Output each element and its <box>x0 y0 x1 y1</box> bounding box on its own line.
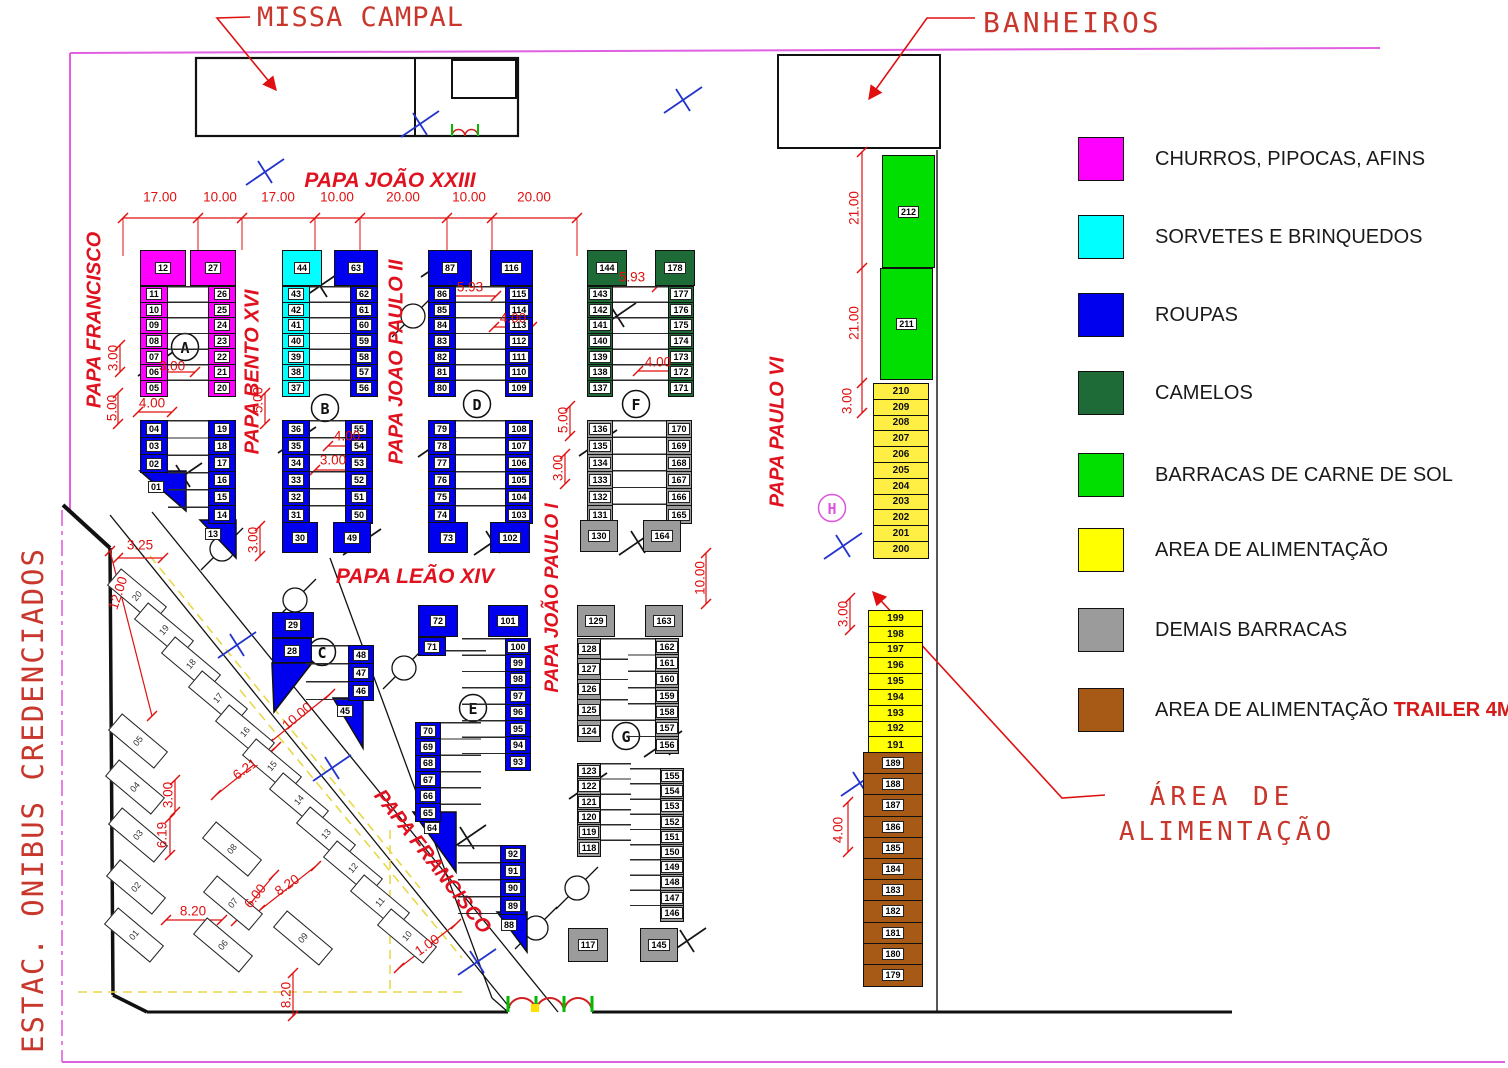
stall-number: 163 <box>653 615 674 627</box>
parking-stall-number: 02 <box>129 880 143 894</box>
stall-endcap: 130 <box>580 520 618 552</box>
stall-number: 53 <box>351 457 367 469</box>
stall-cell: 120 <box>578 810 600 825</box>
street-papa-joao-paulo-ii: PAPA JOAO PAULO II <box>386 260 409 465</box>
stall-number: 146 <box>661 907 682 919</box>
stall-cell: 139 <box>588 349 612 365</box>
stall-cell: 03 <box>141 438 167 455</box>
stall-number: 104 <box>508 491 529 503</box>
stall-number: 73 <box>440 532 456 544</box>
stall-number: 115 <box>509 288 530 300</box>
stall-number: 90 <box>505 882 521 894</box>
reference-circle-D: D <box>472 396 481 414</box>
stall-number: 124 <box>578 725 599 737</box>
stall-number: 10 <box>146 304 162 316</box>
parking-stall-number: 17 <box>211 691 225 705</box>
stall-cell: 85 <box>429 303 455 319</box>
stall-cell: 127 <box>578 659 600 679</box>
stall-number: 212 <box>898 206 919 218</box>
parking-stall-number: 06 <box>216 938 230 952</box>
parking-stall-number: 20 <box>130 589 144 603</box>
legend-label: CHURROS, PIPOCAS, AFINS <box>1155 148 1425 171</box>
stall-number: 38 <box>288 366 304 378</box>
stall-column: 706968676665 <box>415 722 441 822</box>
stall-endcap: 73 <box>428 522 468 553</box>
stall-number: 92 <box>505 848 521 860</box>
street-papa-leao-xiv: PAPA LEÃO XIV <box>336 565 494 589</box>
stall-number: 168 <box>668 457 689 469</box>
stall-number: 91 <box>505 865 521 877</box>
stall-number: 34 <box>288 457 304 469</box>
stall-number: 128 <box>578 643 599 655</box>
stall-column: 363534333231 <box>282 420 310 524</box>
stall-cell: 18 <box>209 438 235 455</box>
dimension-label: 3.00 <box>320 453 346 468</box>
stall-number: 23 <box>214 335 230 347</box>
stall-number: 71 <box>424 641 440 653</box>
stall-number: 156 <box>656 739 677 751</box>
stall-number: 202 <box>893 512 910 523</box>
stall-cell: 171 <box>669 381 693 397</box>
stall-number: 161 <box>656 657 677 669</box>
stall-column: 199198197196195194193192191 <box>868 610 923 754</box>
stall-number: 40 <box>288 335 304 347</box>
dimension-label: 3.00 <box>106 345 121 371</box>
stall-number: 201 <box>893 528 910 539</box>
stall-column: 191817161514 <box>208 420 236 524</box>
stall-column: 177176175174173172171 <box>668 286 694 397</box>
stall-wedge: 13 <box>205 524 221 542</box>
stall-column: 11100908070605 <box>140 286 168 397</box>
stall-cell: 168 <box>667 455 691 472</box>
stall-number: 19 <box>214 423 230 435</box>
stall-cell: 31 <box>283 506 309 523</box>
stall-number: 93 <box>510 756 526 768</box>
stall-number: 155 <box>661 770 682 782</box>
stall-endcap: 212 <box>882 155 935 268</box>
stall-number: 165 <box>668 509 689 521</box>
stall-divider-lines <box>456 420 505 522</box>
stall-number: 25 <box>214 304 230 316</box>
stall-endcap: 27 <box>190 250 236 286</box>
stall-endcap: 178 <box>655 250 695 286</box>
stall-number: 12 <box>155 262 171 274</box>
stall-number: 208 <box>893 417 910 428</box>
stall-cell: 15 <box>209 489 235 506</box>
stall-number: 79 <box>434 423 450 435</box>
stall-cell: 47 <box>349 664 373 682</box>
stall-cell: 11 <box>141 287 167 303</box>
dimension-label: 10.00 <box>320 190 354 205</box>
area-alimentacao-label-line2: ALIMENTAÇÃO <box>1119 817 1335 847</box>
dimension-label: 5.93 <box>457 280 483 295</box>
street-papa-paulo-vi: PAPA PAULO VI <box>767 357 790 507</box>
stall-endcap: 164 <box>643 520 681 552</box>
stall-number: 211 <box>896 318 917 330</box>
stall-cell: 157 <box>656 720 678 736</box>
legend-swatch <box>1078 371 1124 415</box>
dimension-label: 5.00 <box>556 407 571 433</box>
dimension-label: 20.00 <box>517 190 551 205</box>
stall-number: 184 <box>882 863 903 875</box>
stall-number: 204 <box>893 481 910 492</box>
stall-number: 15 <box>214 491 230 503</box>
stall-endcap: 72 <box>418 605 458 637</box>
stall-cell: 69 <box>416 739 440 755</box>
parking-stall-number: 07 <box>226 896 240 910</box>
stall-cell: 158 <box>656 704 678 720</box>
stall-number: 183 <box>882 884 903 896</box>
stall-number: 177 <box>670 288 691 300</box>
stall-cell: 177 <box>669 287 693 303</box>
stall-number: 45 <box>337 705 353 717</box>
stall-cell: 179 <box>864 965 922 986</box>
stall-cell: 193 <box>869 706 922 722</box>
stall-cell: 40 <box>283 334 309 350</box>
stall-cell: 98 <box>506 672 530 688</box>
stall-endcap: 116 <box>490 250 533 286</box>
stall-cell: 180 <box>864 944 922 965</box>
stall-cell: 140 <box>588 334 612 350</box>
stall-cell: 09 <box>141 318 167 334</box>
stall-number: 136 <box>589 423 610 435</box>
stall-column: 108107106105104103 <box>505 420 533 524</box>
stall-number: 141 <box>589 319 610 331</box>
stall-number: 44 <box>294 262 310 274</box>
stall-number: 137 <box>589 382 610 394</box>
stall-number: 210 <box>893 386 910 397</box>
stall-cell: 05 <box>141 381 167 397</box>
stall-cell: 110 <box>506 365 532 381</box>
legend-swatch <box>1078 528 1124 572</box>
stall-cell: 79 <box>429 421 455 438</box>
stall-number: 142 <box>589 304 610 316</box>
stall-cell: 105 <box>506 472 532 489</box>
stall-cell: 71 <box>419 638 445 655</box>
stall-cell: 135 <box>588 438 612 455</box>
dimension-label: 17.00 <box>143 190 177 205</box>
stall-cell: 115 <box>506 287 532 303</box>
stall-number: 68 <box>420 757 436 769</box>
legend-swatch <box>1078 215 1124 259</box>
stall-cell: 109 <box>506 381 532 397</box>
stall-endcap: 44 <box>282 250 322 286</box>
stall-cell: 203 <box>874 495 928 511</box>
stall-number: 162 <box>656 641 677 653</box>
dimension-label: 3.25 <box>127 538 153 553</box>
stall-cell: 146 <box>661 906 683 921</box>
legend-label: ROUPAS <box>1155 304 1238 327</box>
stall-column: 040302 <box>140 420 168 473</box>
stall-number: 134 <box>589 457 610 469</box>
stall-number: 178 <box>664 262 685 274</box>
stall-cell: 175 <box>669 318 693 334</box>
stall-number: 35 <box>288 440 304 452</box>
stall-number: 78 <box>434 440 450 452</box>
stall-number: 147 <box>661 892 682 904</box>
stall-cell: 161 <box>656 655 678 671</box>
stall-cell: 97 <box>506 688 530 704</box>
stall-endcap: 145 <box>640 928 678 962</box>
stall-number: 46 <box>353 685 369 697</box>
dimension-label: 8.20 <box>180 904 206 919</box>
stall-cell: 38 <box>283 365 309 381</box>
stall-number: 151 <box>661 831 682 843</box>
dimension-label: 21.00 <box>847 306 862 340</box>
stall-cell: 94 <box>506 737 530 753</box>
stall-cell: 108 <box>506 421 532 438</box>
stall-cell: 96 <box>506 705 530 721</box>
legend-swatch <box>1078 688 1124 732</box>
parking-stall-number: 19 <box>157 623 171 637</box>
dimension-label: 3.00 <box>551 455 566 481</box>
stall-number: 207 <box>893 433 910 444</box>
dimension-label: 3.00 <box>246 527 261 553</box>
stall-number: 33 <box>288 474 304 486</box>
stall-number: 131 <box>589 509 610 521</box>
stall-cell: 78 <box>429 438 455 455</box>
stall-number: 22 <box>214 351 230 363</box>
stall-number: 64 <box>424 822 440 834</box>
stall-number: 37 <box>288 382 304 394</box>
parking-stall-number: 08 <box>225 842 239 856</box>
stall-number: 112 <box>509 335 530 347</box>
stall-column: 189188187186185184183182181180179 <box>863 752 923 987</box>
stall-cell: 123 <box>578 764 600 779</box>
stall-cell: 186 <box>864 817 922 838</box>
stall-cell: 141 <box>588 318 612 334</box>
stall-cell: 136 <box>588 421 612 438</box>
stall-number: 61 <box>356 304 372 316</box>
dimension-label: 3.00 <box>159 359 185 374</box>
stall-number: 14 <box>214 509 230 521</box>
stall-number: 17 <box>214 457 230 469</box>
parking-stall-number: 14 <box>292 793 306 807</box>
stall-cell: 42 <box>283 303 309 319</box>
stall-divider-lines <box>613 420 666 520</box>
stall-column: 143142141140139138137 <box>587 286 613 397</box>
stall-number: 205 <box>893 465 910 476</box>
stall-number: 167 <box>668 474 689 486</box>
stall-number: 16 <box>214 474 230 486</box>
stall-number: 18 <box>214 440 230 452</box>
stall-number: 121 <box>578 796 599 808</box>
stall-cell: 93 <box>506 754 530 770</box>
stall-number: 106 <box>508 457 529 469</box>
stall-number: 97 <box>510 690 526 702</box>
stall-number: 84 <box>434 319 450 331</box>
stall-divider-lines <box>601 763 631 855</box>
stall-number: 96 <box>510 706 526 718</box>
stall-cell: 173 <box>669 349 693 365</box>
stall-cell: 202 <box>874 510 928 526</box>
stall-endcap: 63 <box>334 250 378 286</box>
dimension-label: 5.00 <box>105 395 120 421</box>
stall-cell: 37 <box>283 381 309 397</box>
stall-number: 58 <box>356 351 372 363</box>
stall-cell: 125 <box>578 700 600 720</box>
stall-number: 127 <box>578 663 599 675</box>
stall-number: 187 <box>882 799 903 811</box>
legend-swatch <box>1078 608 1124 652</box>
stall-cell: 176 <box>669 303 693 319</box>
stall-number: 154 <box>661 785 682 797</box>
stall-number: 119 <box>579 826 600 838</box>
stall-endcap: 211 <box>880 268 933 380</box>
stall-cell: 92 <box>501 846 525 863</box>
parking-stall-number: 18 <box>184 657 198 671</box>
stall-cell: 19 <box>209 421 235 438</box>
stall-number: 171 <box>670 382 691 394</box>
parking-stall-number: 01 <box>127 928 141 942</box>
stall-cell: 187 <box>864 795 922 816</box>
stall-number: 118 <box>579 842 600 854</box>
stall-number: 174 <box>670 335 691 347</box>
stall-cell: 81 <box>429 365 455 381</box>
stall-cell: 200 <box>874 542 928 558</box>
stall-number: 200 <box>893 544 910 555</box>
stall-endcap: 101 <box>488 605 528 637</box>
parking-stall-number: 11 <box>373 895 387 909</box>
stall-cell: 41 <box>283 318 309 334</box>
stall-number: 150 <box>661 846 682 858</box>
stall-number: 56 <box>356 382 372 394</box>
stall-number: 103 <box>508 509 529 521</box>
parking-stall-number: 13 <box>319 827 333 841</box>
stall-divider-lines <box>168 286 208 395</box>
stall-cell: 46 <box>349 682 373 700</box>
stall-number: 132 <box>589 491 610 503</box>
stall-cell: 02 <box>141 455 167 472</box>
stall-cell: 137 <box>588 381 612 397</box>
stall-divider-lines <box>630 768 660 920</box>
stall-cell: 56 <box>351 381 377 397</box>
stall-number: 41 <box>288 319 304 331</box>
stall-divider-lines <box>306 645 348 700</box>
stall-cell: 50 <box>346 506 372 523</box>
stall-number: 166 <box>668 491 689 503</box>
stall-number: 27 <box>205 262 221 274</box>
stall-cell: 209 <box>874 400 928 416</box>
stall-number: 194 <box>887 692 904 703</box>
dimension-label: 5.00 <box>251 387 266 413</box>
stall-number: 13 <box>205 528 221 540</box>
stall-number: 145 <box>648 939 669 951</box>
stall-number: 176 <box>670 304 691 316</box>
stall-cell: 76 <box>429 472 455 489</box>
stall-number: 117 <box>578 939 599 951</box>
stall-cell: 16 <box>209 472 235 489</box>
stall-number: 122 <box>578 780 599 792</box>
stall-number: 152 <box>661 816 682 828</box>
stall-number: 76 <box>434 474 450 486</box>
dimension-label: 8.20 <box>279 982 294 1008</box>
stall-number: 74 <box>434 509 450 521</box>
stall-cell: 138 <box>588 365 612 381</box>
stall-number: 57 <box>356 366 372 378</box>
stall-number: 50 <box>351 509 367 521</box>
stall-cell: 10 <box>141 303 167 319</box>
stall-cell: 156 <box>656 737 678 753</box>
stall-number: 02 <box>146 458 162 470</box>
stall-cell: 181 <box>864 923 922 944</box>
stall-cell: 148 <box>661 875 683 890</box>
legend-label-suffix: TRAILER 4M <box>1394 699 1508 721</box>
stall-cell: 167 <box>667 472 691 489</box>
stall-cell: 184 <box>864 859 922 880</box>
stall-cell: 188 <box>864 774 922 795</box>
stall-cell: 22 <box>209 349 235 365</box>
stall-cell: 155 <box>661 769 683 784</box>
stall-cell: 39 <box>283 349 309 365</box>
stall-column: 92919089 <box>500 845 526 915</box>
stall-number: 80 <box>434 382 450 394</box>
stall-divider-lines <box>462 638 505 769</box>
stall-cell: 84 <box>429 318 455 334</box>
stall-number: 60 <box>356 319 372 331</box>
stall-cell: 104 <box>506 489 532 506</box>
stall-number: 95 <box>510 723 526 735</box>
stall-number: 198 <box>887 629 904 640</box>
stall-cell: 62 <box>351 287 377 303</box>
stall-number: 209 <box>893 402 910 413</box>
stall-number: 59 <box>356 335 372 347</box>
stall-number: 102 <box>499 532 520 544</box>
stall-divider-lines <box>310 286 350 395</box>
stall-number: 88 <box>501 919 517 931</box>
stall-number: 62 <box>356 288 372 300</box>
stall-number: 125 <box>578 704 599 716</box>
stall-cell: 183 <box>864 880 922 901</box>
stall-cell: 86 <box>429 287 455 303</box>
stall-number: 04 <box>146 423 162 435</box>
stall-cell: 201 <box>874 526 928 542</box>
stall-number: 110 <box>509 366 530 378</box>
stall-cell: 80 <box>429 381 455 397</box>
stall-number: 51 <box>351 491 367 503</box>
dimension-label: 3.00 <box>161 782 176 808</box>
stall-number: 111 <box>509 351 529 363</box>
parking-stall-number: 16 <box>238 725 252 739</box>
stall-number: 39 <box>288 351 304 363</box>
stall-cell: 35 <box>283 438 309 455</box>
stall-number: 26 <box>214 288 230 300</box>
stall-cell: 111 <box>506 349 532 365</box>
dimension-label: 4.00 <box>500 311 526 326</box>
legend-swatch <box>1078 453 1124 497</box>
parking-stall-number: 15 <box>265 759 279 773</box>
stall-number: 192 <box>887 723 904 734</box>
stall-cell: 60 <box>351 318 377 334</box>
stall-wedge: 45 <box>337 701 353 719</box>
stall-cell: 32 <box>283 489 309 506</box>
legend-label: CAMELOS <box>1155 382 1253 405</box>
stall-cell: 43 <box>283 287 309 303</box>
stall-number: 105 <box>508 474 529 486</box>
parking-stall-number: 05 <box>131 734 145 748</box>
stall-cell: 57 <box>351 365 377 381</box>
stall-number: 32 <box>288 491 304 503</box>
stall-cell: 77 <box>429 455 455 472</box>
stall-cell: 166 <box>667 489 691 506</box>
stall-number: 81 <box>434 366 450 378</box>
stall-cell: 152 <box>661 815 683 830</box>
stall-number: 130 <box>588 530 609 542</box>
parking-stall-number: 09 <box>296 931 310 945</box>
stall-endcap: 49 <box>333 522 371 553</box>
dimension-label: 4.00 <box>831 817 846 843</box>
stall-number: 135 <box>589 440 610 452</box>
